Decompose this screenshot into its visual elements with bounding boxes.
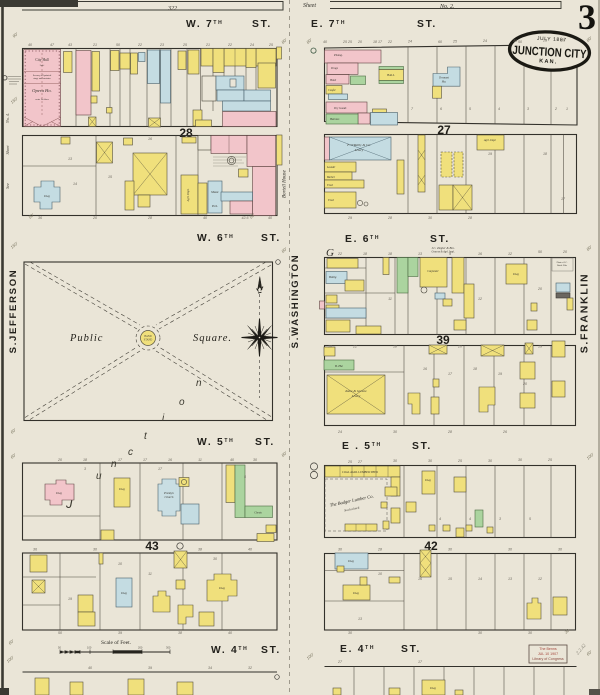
svg-text:S.JEFFERSON: S.JEFFERSON [8, 269, 19, 354]
svg-text:42.6: 42.6 [242, 216, 249, 220]
svg-text:25: 25 [268, 43, 273, 47]
svg-text:Dwg: Dwg [120, 591, 127, 595]
svg-text:20: 20 [537, 287, 542, 291]
svg-text:No. 2.: No. 2. [439, 4, 455, 10]
svg-text:Dwg: Dwg [118, 487, 125, 491]
svg-text:25: 25 [347, 40, 352, 44]
svg-text:Confec: Confec [328, 89, 337, 92]
svg-text:40: 40 [28, 43, 32, 47]
svg-text:30: 30 [508, 548, 512, 552]
svg-text:40: 40 [268, 216, 272, 220]
svg-text:22: 22 [227, 43, 232, 47]
svg-text:30: 30 [478, 631, 482, 635]
svg-text:ST.: ST. [261, 645, 281, 656]
svg-text:ST.: ST. [261, 233, 281, 244]
svg-text:22: 22 [352, 345, 357, 349]
svg-text:Sheet: Sheet [303, 3, 316, 9]
svg-text:40: 40 [230, 458, 234, 462]
svg-text:Dwg: Dwg [424, 478, 431, 482]
svg-text:Bottlg: Bottlg [329, 275, 337, 279]
svg-text:Livery: Livery [354, 148, 364, 152]
svg-text:B. Hse: B. Hse [335, 364, 344, 368]
svg-text:18: 18 [373, 40, 377, 44]
svg-text:30: 30 [93, 548, 97, 552]
svg-text:5: 5 [529, 517, 531, 521]
svg-text:60: 60 [438, 40, 442, 44]
svg-text:Opera Ho.: Opera Ho. [32, 88, 52, 93]
svg-text:18: 18 [83, 458, 87, 462]
svg-text:1: 1 [566, 107, 568, 111]
svg-text:13: 13 [418, 252, 422, 256]
svg-text:5: 5 [244, 475, 246, 479]
svg-text:30: 30 [558, 548, 562, 552]
svg-text:16: 16 [418, 577, 422, 581]
svg-text:Scale of Feet.: Scale of Feet. [101, 639, 132, 646]
svg-text:3: 3 [84, 467, 86, 471]
svg-text:23: 23 [159, 43, 164, 47]
svg-text:24: 24 [482, 39, 487, 43]
svg-text:13: 13 [508, 577, 512, 581]
svg-text:Barber: Barber [327, 176, 336, 179]
svg-text:24: 24 [249, 43, 254, 47]
svg-text:30: 30 [348, 631, 352, 635]
svg-text:seats 1st floor: seats 1st floor [35, 98, 48, 101]
svg-text:50: 50 [538, 250, 542, 254]
svg-text:See: See [5, 183, 10, 189]
svg-text:S.FRANKLIN: S.FRANKLIN [579, 273, 591, 354]
svg-text:Dwg: Dwg [352, 591, 359, 595]
svg-text:12: 12 [538, 577, 542, 581]
svg-text:20: 20 [92, 216, 97, 220]
svg-text:40: 40 [228, 631, 232, 635]
svg-text:18: 18 [393, 345, 397, 349]
svg-text:Music: Music [211, 190, 219, 194]
svg-text:Chrstn: Chrstn [254, 512, 262, 515]
svg-text:19: 19 [498, 372, 502, 376]
svg-text:21: 21 [92, 43, 97, 47]
svg-text:22: 22 [137, 43, 142, 47]
svg-text:10: 10 [118, 562, 122, 566]
svg-text:40: 40 [203, 216, 207, 220]
svg-text:S.WASHINGTON: S.WASHINGTON [290, 254, 301, 349]
svg-text:24: 24 [337, 430, 342, 434]
svg-text:15: 15 [448, 577, 452, 581]
svg-text:HALL: HALL [387, 74, 395, 77]
svg-text:Dwg: Dwg [55, 491, 62, 495]
svg-text:25: 25 [452, 40, 457, 44]
svg-text:Dwg: Dwg [43, 194, 50, 198]
svg-text:J.C. Ziegler & Bro.: J.C. Ziegler & Bro. [431, 246, 454, 250]
svg-text:Dwg: Dwg [512, 272, 519, 276]
svg-text:38: 38 [178, 631, 182, 635]
svg-text:36: 36 [33, 548, 37, 552]
svg-text:25: 25 [182, 43, 187, 47]
svg-text:3: 3 [499, 517, 501, 521]
svg-text:Public: Public [69, 333, 103, 344]
svg-text:ST.: ST. [417, 19, 437, 30]
svg-text:40: 40 [323, 40, 327, 44]
svg-text:JUL 10 1907: JUL 10 1907 [538, 652, 558, 656]
svg-text:38: 38 [198, 548, 202, 552]
svg-text:12: 12 [478, 297, 482, 301]
svg-text:ST.: ST. [430, 234, 450, 245]
svg-text:o: o [179, 397, 185, 408]
svg-text:Church: Church [165, 495, 174, 499]
svg-text:18: 18 [543, 152, 547, 156]
svg-text:2: 2 [554, 107, 557, 111]
svg-text:30: 30 [338, 548, 342, 552]
svg-text:10: 10 [378, 572, 382, 576]
svg-text:Dwg: Dwg [218, 586, 225, 590]
svg-text:30: 30 [448, 548, 452, 552]
svg-text:stage and curtains: stage and curtains [33, 77, 50, 80]
svg-text:14: 14 [73, 182, 77, 186]
svg-text:28: 28 [387, 216, 392, 220]
svg-text:30: 30 [253, 458, 257, 462]
svg-text:COAL AGRL LUMBER SHED: COAL AGRL LUMBER SHED [342, 471, 378, 474]
svg-text:ST.: ST. [412, 441, 432, 452]
svg-text:25: 25 [547, 458, 552, 462]
svg-text:11: 11 [388, 297, 392, 301]
svg-text:30: 30 [528, 631, 532, 635]
svg-text:4: 4 [498, 107, 500, 111]
svg-text:Plant of J.C.: Plant of J.C. [557, 261, 568, 264]
svg-text:21: 21 [205, 43, 210, 47]
svg-text:KAN.: KAN. [539, 58, 558, 65]
svg-text:Kane & Greene: Kane & Greene [344, 389, 367, 393]
svg-text:ST.: ST. [255, 437, 275, 448]
svg-text:34: 34 [208, 666, 212, 670]
svg-text:300: 300 [166, 646, 171, 650]
svg-text:Bortell House: Bortell House [283, 169, 288, 198]
svg-text:32: 32 [248, 666, 252, 670]
svg-text:Feed: Feed [326, 184, 333, 187]
svg-text:20: 20 [57, 458, 62, 462]
svg-text:18: 18 [473, 367, 477, 371]
svg-text:20: 20 [457, 345, 462, 349]
svg-text:Dry Goods: Dry Goods [333, 107, 346, 110]
svg-text:40: 40 [248, 548, 252, 552]
svg-text:11: 11 [198, 458, 202, 462]
svg-text:Hotel: Hotel [329, 79, 336, 82]
svg-text:30: 30 [513, 39, 517, 43]
svg-text:18: 18 [363, 252, 367, 256]
svg-text:Agrl. Impl.: Agrl. Impl. [483, 139, 496, 142]
svg-text:5: 5 [469, 107, 471, 111]
svg-text:43: 43 [68, 43, 72, 47]
svg-text:43: 43 [145, 539, 159, 553]
svg-text:9: 9 [449, 252, 451, 256]
svg-text:19: 19 [538, 345, 542, 349]
svg-text:City Hall: City Hall [35, 58, 48, 62]
svg-text:Photog.: Photog. [333, 54, 343, 57]
svg-text:No. 4.: No. 4. [5, 113, 10, 124]
svg-text:50: 50 [58, 631, 62, 635]
svg-text:322: 322 [167, 6, 177, 12]
svg-text:30: 30 [488, 459, 492, 463]
svg-text:3: 3 [578, 0, 596, 37]
svg-text:30: 30 [213, 557, 217, 561]
svg-text:Ho.: Ho. [441, 80, 447, 84]
svg-text:Drugs: Drugs [330, 67, 338, 70]
svg-text:25: 25 [347, 460, 352, 464]
svg-text:30: 30 [428, 216, 432, 220]
svg-text:3: 3 [527, 107, 529, 111]
svg-text:24: 24 [407, 40, 412, 44]
svg-text:3rd f: 3rd f [40, 64, 45, 67]
svg-text:Sheet: Sheet [5, 145, 10, 155]
svg-text:19: 19 [488, 152, 492, 156]
svg-text:13: 13 [358, 617, 362, 621]
svg-text:12: 12 [508, 252, 512, 256]
svg-text:25: 25 [457, 459, 462, 463]
svg-text:28: 28 [377, 548, 382, 552]
svg-text:Square.: Square. [193, 333, 232, 344]
svg-text:16: 16 [478, 252, 482, 256]
svg-text:30: 30 [428, 459, 432, 463]
svg-text:26: 26 [502, 430, 507, 434]
svg-text:19: 19 [68, 597, 72, 601]
svg-text:15: 15 [108, 175, 112, 179]
svg-text:11: 11 [148, 572, 152, 576]
svg-text:14: 14 [478, 577, 482, 581]
svg-text:16: 16 [168, 458, 172, 462]
svg-text:Dwg: Dwg [347, 559, 354, 563]
svg-text:Harness: Harness [329, 118, 339, 121]
svg-text:6: 6 [440, 107, 442, 111]
svg-text:ST.: ST. [401, 644, 421, 655]
svg-text:20: 20 [562, 250, 567, 254]
svg-text:Agrl. Impl.: Agrl. Impl. [186, 188, 190, 202]
svg-text:22: 22 [387, 40, 392, 44]
svg-text:c: c [128, 447, 133, 458]
svg-text:STAND: STAND [144, 339, 153, 342]
svg-text:39: 39 [148, 666, 152, 670]
svg-text:28: 28 [467, 216, 472, 220]
svg-text:36: 36 [38, 216, 42, 220]
svg-text:200: 200 [138, 646, 143, 650]
svg-text:P.O.: P.O. [212, 204, 218, 208]
svg-text:ST.: ST. [252, 19, 272, 30]
svg-text:u: u [96, 471, 102, 482]
svg-text:Livery: Livery [351, 394, 361, 398]
svg-text:4: 4 [439, 517, 441, 521]
svg-text:28: 28 [447, 430, 452, 434]
svg-text:20: 20 [560, 39, 565, 43]
svg-text:50: 50 [116, 43, 120, 47]
svg-text:25: 25 [542, 39, 547, 43]
svg-text:20: 20 [357, 40, 362, 44]
svg-text:Grocery & Agrl. Impl.: Grocery & Agrl. Impl. [431, 251, 454, 254]
svg-text:30: 30 [393, 430, 397, 434]
svg-text:39: 39 [118, 631, 122, 635]
svg-text:F. O'Reilly & Co.: F. O'Reilly & Co. [346, 143, 371, 147]
svg-text:Library of Congress: Library of Congress [532, 657, 564, 661]
svg-text:50: 50 [518, 40, 522, 44]
svg-text:22: 22 [337, 252, 342, 256]
svg-text:13: 13 [68, 157, 72, 161]
svg-text:40: 40 [88, 666, 92, 670]
svg-text:30: 30 [518, 458, 522, 462]
svg-text:25: 25 [342, 40, 347, 44]
svg-text:16: 16 [423, 367, 427, 371]
svg-text:Laundr: Laundr [326, 166, 336, 169]
svg-text:16: 16 [148, 137, 152, 141]
svg-text:G: G [326, 247, 334, 259]
svg-text:4: 4 [469, 517, 471, 521]
svg-text:20: 20 [522, 382, 527, 386]
svg-text:29: 29 [347, 216, 352, 220]
svg-text:Feed: Feed [327, 199, 334, 202]
svg-text:n: n [196, 378, 202, 389]
svg-text:18: 18 [388, 252, 392, 256]
svg-text:Carpenter: Carpenter [427, 270, 439, 273]
svg-text:The Benns: The Benns [539, 647, 557, 651]
svg-text:Bottle Wks: Bottle Wks [557, 265, 567, 267]
svg-text:n: n [111, 459, 117, 470]
svg-text:28: 28 [147, 216, 152, 220]
svg-text:30: 30 [393, 459, 397, 463]
svg-text:100: 100 [87, 646, 92, 650]
svg-text:20: 20 [327, 345, 332, 349]
svg-text:Dwg: Dwg [429, 686, 436, 690]
